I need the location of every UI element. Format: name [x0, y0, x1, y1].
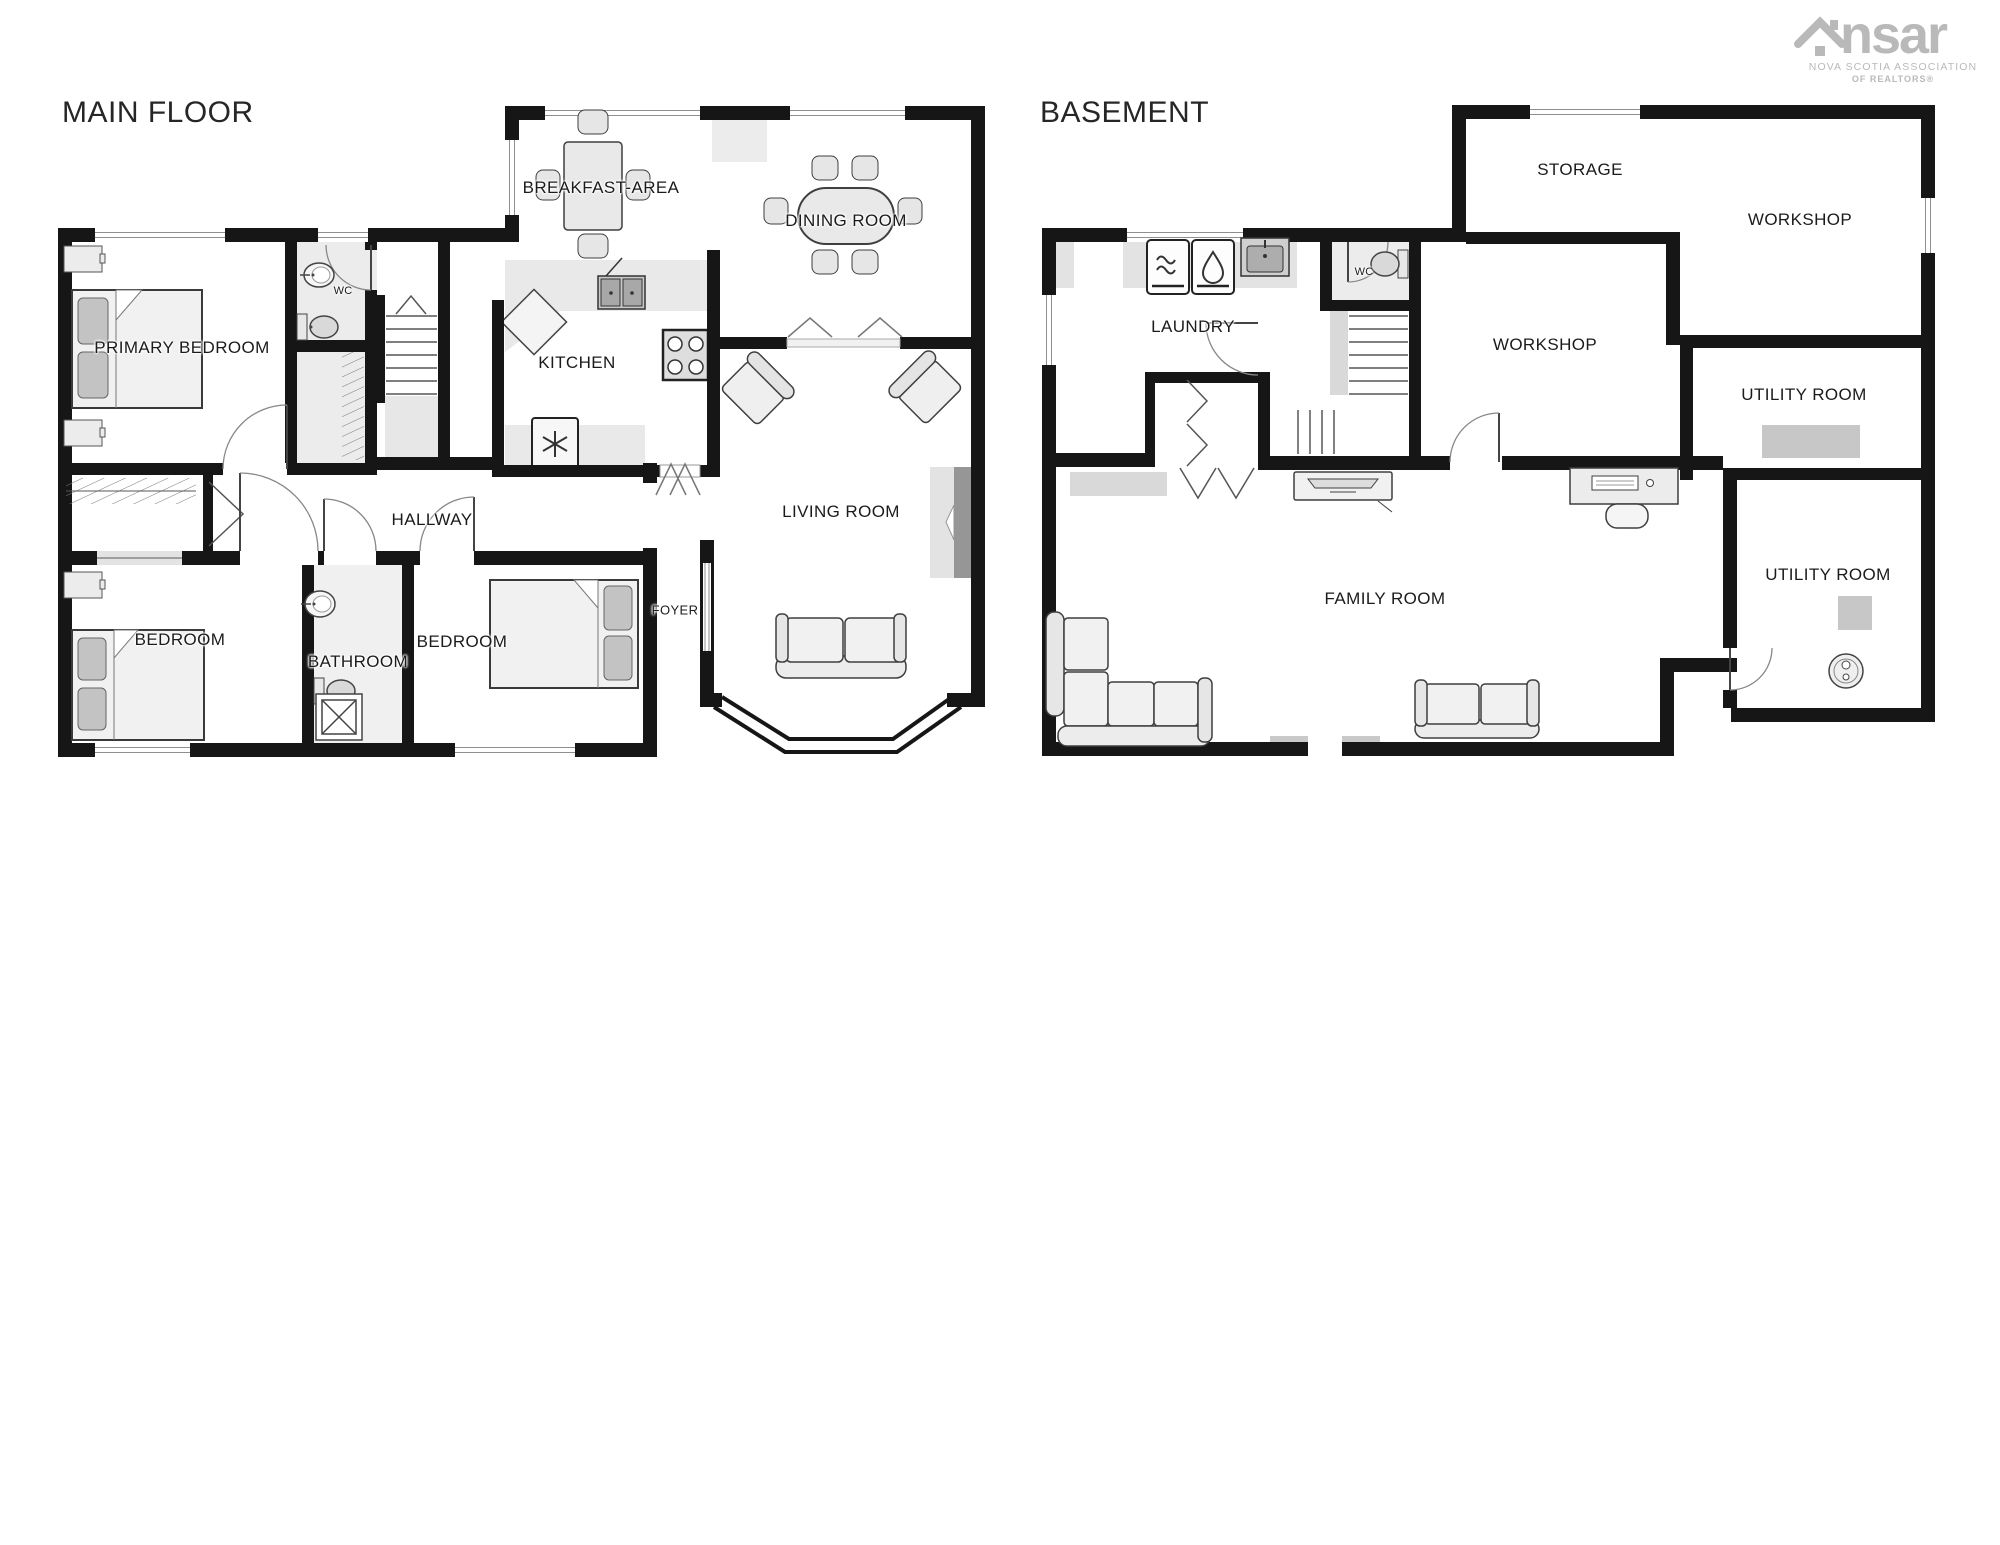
logo-text-ar: ar [1899, 14, 1946, 57]
shower-icon [316, 694, 362, 740]
laundry-sink-icon [1241, 238, 1289, 276]
stove-icon [663, 330, 708, 380]
armchair [886, 348, 965, 427]
room-label-breakfast-area: BREAKFAST-AREA [523, 178, 680, 198]
room-label-storage: STORAGE [1537, 160, 1623, 180]
house-roof-icon [1794, 14, 1846, 58]
water-heater-icon [1829, 654, 1863, 688]
desk-chair [1606, 504, 1648, 528]
floor-shading [1056, 236, 1872, 756]
wc-toilet-icon [297, 314, 338, 340]
room-label-kitchen: KITCHEN [538, 353, 615, 373]
room-label-living-room: LIVING ROOM [782, 502, 900, 522]
stairs [386, 296, 437, 394]
room-label-bedroom-left: BEDROOM [135, 630, 226, 650]
dining-living-opening [787, 318, 902, 347]
main-floor-plan [58, 106, 985, 757]
room-label-workshop-right: WORKSHOP [1748, 210, 1852, 230]
washer-icon [1147, 240, 1189, 294]
basement-title: BASEMENT [1040, 96, 1209, 130]
sectional-sofa [1046, 612, 1212, 746]
room-label-foyer: FOYER [652, 603, 699, 618]
armchair [718, 349, 797, 428]
bay-window [714, 697, 961, 752]
room-label-primary-bedroom: PRIMARY BEDROOM [94, 338, 269, 358]
dryer-icon [1192, 240, 1234, 294]
main-floor-title: MAIN FLOOR [62, 96, 254, 130]
loveseat [1415, 680, 1539, 738]
room-label-bathroom: BATHROOM [308, 652, 408, 672]
bed [490, 580, 638, 688]
sofa [776, 614, 906, 678]
logo-association-text: NOVA SCOTIA ASSOCIATION [1798, 61, 1988, 73]
desk [1570, 468, 1678, 528]
logo-realtors-text: OF REALTORS® [1798, 74, 1988, 84]
room-label-utility-room-lower: UTILITY ROOM [1765, 565, 1890, 585]
fridge-icon [532, 418, 578, 468]
wc-toilet-icon [1371, 250, 1408, 278]
basement-plan [1042, 105, 1935, 756]
room-label-bedroom-right: BEDROOM [417, 632, 508, 652]
floor-plan-drawing [0, 0, 2000, 1545]
room-label-utility-room-upper: UTILITY ROOM [1741, 385, 1866, 405]
room-label-family-room: FAMILY ROOM [1325, 589, 1446, 609]
nsar-logo: ns ar NOVA SCOTIA ASSOCIATION OF REALTOR… [1798, 14, 1988, 84]
stairs [1298, 316, 1408, 454]
logo-text-ns: ns [1840, 14, 1899, 57]
room-label-dining-room: DINING ROOM [785, 211, 907, 231]
nsar-wordmark: ns ar [1798, 14, 1988, 57]
room-label-wc: WC [334, 285, 353, 297]
room-label-hallway: HALLWAY [392, 510, 473, 530]
fireplace [930, 467, 971, 578]
room-label-workshop-left: WORKSHOP [1493, 335, 1597, 355]
floorplan-page: MAIN FLOOR BASEMENT PRIMARY BEDROOM WC H… [0, 0, 2000, 1545]
furnace [1838, 596, 1872, 630]
room-label-basement-wc: WC [1355, 266, 1374, 278]
tv-console [1294, 472, 1392, 512]
furnace [1762, 425, 1860, 458]
room-label-laundry: LAUNDRY [1151, 317, 1235, 337]
